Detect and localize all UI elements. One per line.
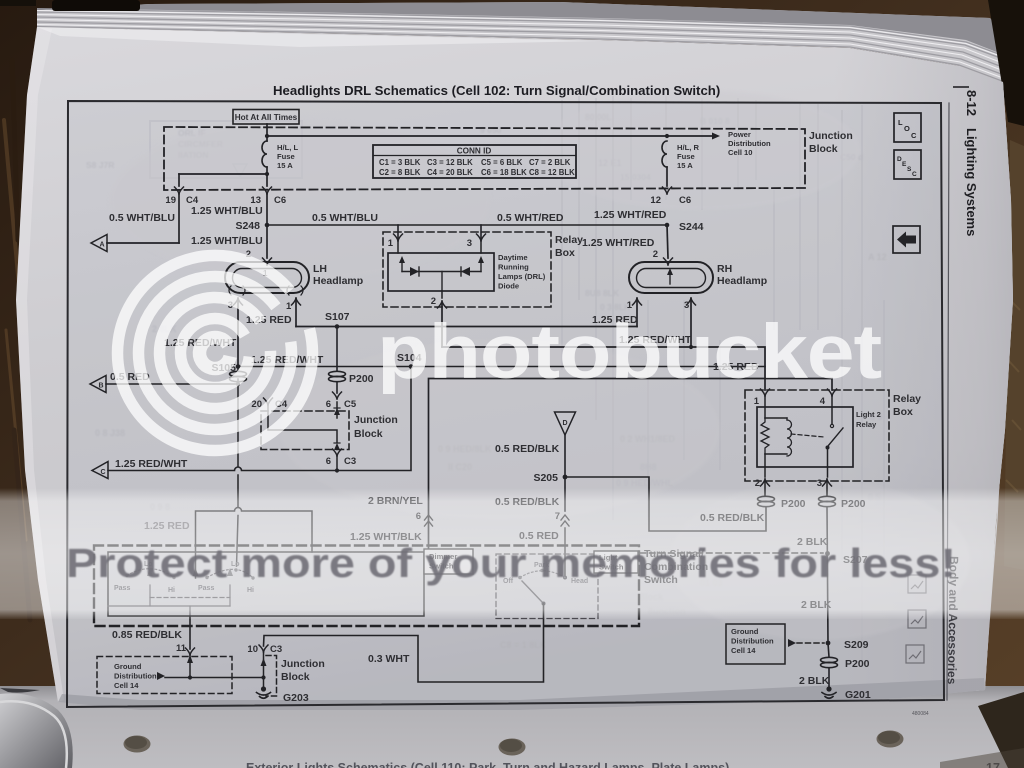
svg-text:Ground: Ground [114,662,142,671]
svg-text:Fuse: Fuse [677,152,695,161]
svg-text:0.5 WHT/BLU: 0.5 WHT/BLU [109,212,175,224]
svg-text:Distribution: Distribution [114,672,157,681]
svg-text:S205: S205 [533,472,558,484]
svg-text:3: 3 [467,238,472,249]
svg-text:Headlamp: Headlamp [717,275,767,287]
svg-text:C6: C6 [274,195,286,206]
svg-text:Power: Power [728,130,751,139]
svg-text:C: C [100,469,105,476]
svg-text:19: 19 [165,195,176,206]
svg-text:Cell 10: Cell 10 [728,148,752,157]
svg-text:Lamps (DRL): Lamps (DRL) [498,272,546,281]
svg-text:2: 2 [431,296,436,307]
svg-text:Relay: Relay [893,393,921,405]
svg-text:6: 6 [326,456,331,467]
svg-text:0.5 RED/BLK: 0.5 RED/BLK [495,443,560,455]
svg-text:C6: C6 [679,195,691,206]
svg-text:Hot At All Times: Hot At All Times [235,113,298,122]
svg-text:Distribution: Distribution [728,139,771,148]
svg-text:1: 1 [286,301,292,312]
svg-text:Box: Box [893,406,913,418]
svg-text:Lighting Systems: Lighting Systems [964,128,979,236]
svg-text:10: 10 [247,644,258,655]
svg-text:S107: S107 [325,311,350,323]
svg-text:D: D [562,420,567,427]
svg-text:2 BLK: 2 BLK [799,675,830,687]
svg-text:L: L [898,118,903,127]
svg-text:A: A [99,242,104,249]
svg-text:P200: P200 [349,373,374,385]
svg-text:S244: S244 [679,221,704,233]
svg-text:Block: Block [354,428,383,440]
svg-text:C5 = 6 BLK: C5 = 6 BLK [481,158,523,167]
svg-text:C: C [911,131,917,140]
svg-text:Headlamp: Headlamp [313,275,363,287]
svg-text:CONN ID: CONN ID [457,147,492,156]
svg-text:0.5 WHT/RED: 0.5 WHT/RED [497,212,564,224]
svg-text:1: 1 [388,238,394,249]
svg-text:C5: C5 [344,399,357,410]
svg-text:11: 11 [176,643,187,654]
svg-text:Junction: Junction [809,130,853,142]
svg-text:1: 1 [754,396,760,407]
svg-text:Junction: Junction [281,658,325,670]
svg-text:3: 3 [817,478,822,489]
svg-text:0.5 WHT/BLU: 0.5 WHT/BLU [312,212,378,224]
svg-text:G203: G203 [283,692,309,704]
svg-text:1.25 RED/WHT: 1.25 RED/WHT [115,458,188,470]
svg-text:C3: C3 [344,456,356,467]
svg-text:2: 2 [653,249,658,260]
svg-text:Light 2: Light 2 [856,410,881,419]
svg-text:0.3 WHT: 0.3 WHT [368,653,410,665]
svg-text:4: 4 [820,396,826,407]
svg-text:C1 = 3 BLK: C1 = 3 BLK [379,158,421,167]
svg-text:15 A: 15 A [277,161,293,170]
svg-text:C4 = 20 BLK: C4 = 20 BLK [427,168,473,177]
svg-text:Junction: Junction [354,414,398,426]
svg-text:Exterior Lights Schematics (Ce: Exterior Lights Schematics (Cell 110: Pa… [246,761,729,768]
svg-text:15 A: 15 A [677,161,693,170]
svg-text:Block: Block [281,671,310,683]
svg-text:Box: Box [555,247,575,259]
svg-text:C3: C3 [270,644,282,655]
svg-text:6: 6 [326,399,331,410]
svg-text:Fuse: Fuse [277,152,295,161]
svg-text:Daytime: Daytime [498,253,528,262]
svg-text:Diode: Diode [498,282,519,291]
svg-text:Distribution: Distribution [731,637,774,646]
svg-text:1.25 WHT/RED: 1.25 WHT/RED [594,209,667,221]
svg-text:H/L, R: H/L, R [677,143,699,152]
svg-text:480084: 480084 [912,711,929,717]
svg-text:Ground: Ground [731,627,759,636]
svg-text:Running: Running [498,263,529,272]
svg-text:LH: LH [313,263,327,275]
svg-text:0.85 RED/BLK: 0.85 RED/BLK [112,629,182,641]
svg-text:2: 2 [755,478,760,489]
svg-text:C: C [912,171,917,178]
svg-text:C7 = 2 BLK: C7 = 2 BLK [529,158,571,167]
svg-text:8-12: 8-12 [964,90,979,116]
svg-text:photobucket: photobucket [377,309,881,395]
svg-text:1.25 WHT/BLU: 1.25 WHT/BLU [191,235,263,247]
svg-text:RH: RH [717,263,732,275]
svg-text:Cell 14: Cell 14 [731,646,756,655]
svg-text:C6 = 18 BLK: C6 = 18 BLK [481,168,527,177]
svg-text:Relay: Relay [856,420,877,429]
svg-text:Cell 14: Cell 14 [114,681,139,690]
svg-text:1.25 WHT/RED: 1.25 WHT/RED [582,237,655,249]
svg-text:1.25 WHT/BLU: 1.25 WHT/BLU [191,205,263,217]
svg-text:G201: G201 [845,689,871,701]
svg-text:C3 = 12 BLK: C3 = 12 BLK [427,158,473,167]
svg-text:S248: S248 [235,220,260,232]
svg-text:Headlights DRL Schematics (Cel: Headlights DRL Schematics (Cell 102: Tur… [273,83,720,98]
svg-text:Relay: Relay [555,234,583,246]
svg-text:O: O [904,124,910,133]
svg-text:B: B [98,383,103,390]
svg-text:Protect more of your memories: Protect more of your memories for less! [66,540,956,586]
svg-text:S209: S209 [844,639,869,651]
svg-text:C8 = 12 BLK: C8 = 12 BLK [529,168,575,177]
svg-text:P200: P200 [845,658,870,670]
svg-text:C2 = 8 BLK: C2 = 8 BLK [379,168,421,177]
svg-text:Block: Block [809,143,838,155]
svg-text:12: 12 [650,195,661,206]
svg-text:H/L, L: H/L, L [277,143,298,152]
